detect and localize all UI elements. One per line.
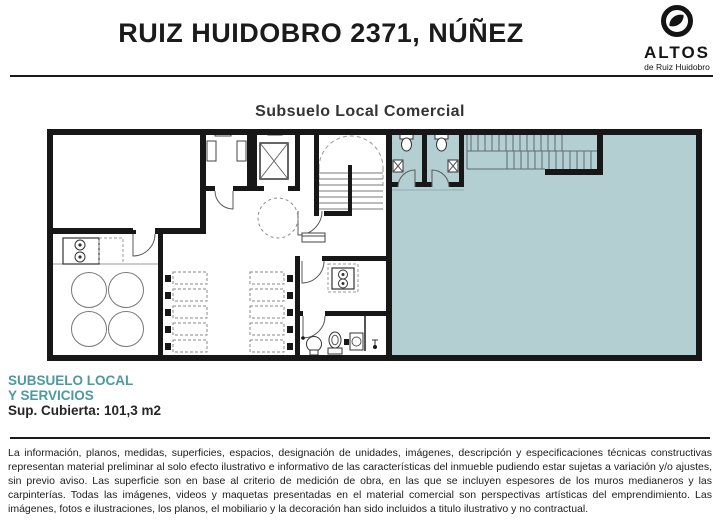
plan-title: Subsuelo Local Comercial [0,103,720,121]
unit-label: SUBSUELO LOCAL Y SERVICIOS [8,373,133,403]
commercial-area-fill [388,129,702,361]
bath-partition [364,316,366,351]
brand-logo: ALTOS de Ruiz Huidobro [640,5,714,72]
bench [302,233,325,242]
logo-seed-icon [661,5,693,37]
floor-plan-drawing [47,129,702,361]
flyer-page: RUIZ HUIDOBRO 2371, NÚÑEZ ALTOS de Ruiz … [0,0,720,532]
elevator [260,143,288,179]
unit-name-line2: Y SERVICIOS [8,388,133,403]
floor-plan [47,129,702,361]
door-tip-mark [301,336,305,340]
unit-name-line1: SUBSUELO LOCAL [8,373,133,388]
door-hinge-mark [131,230,136,234]
logo-subtitle: de Ruiz Huidobro [640,62,714,72]
footer-divider [10,437,710,439]
header-divider [10,75,713,77]
legal-disclaimer: La información, planos, medidas, superfi… [8,447,712,517]
covered-area-label: Sup. Cubierta: 101,3 m2 [8,403,161,418]
logo-brand-text: ALTOS [640,43,714,63]
stove-service-room [328,264,358,292]
page-title: RUIZ HUIDOBRO 2371, NÚÑEZ [0,18,642,49]
